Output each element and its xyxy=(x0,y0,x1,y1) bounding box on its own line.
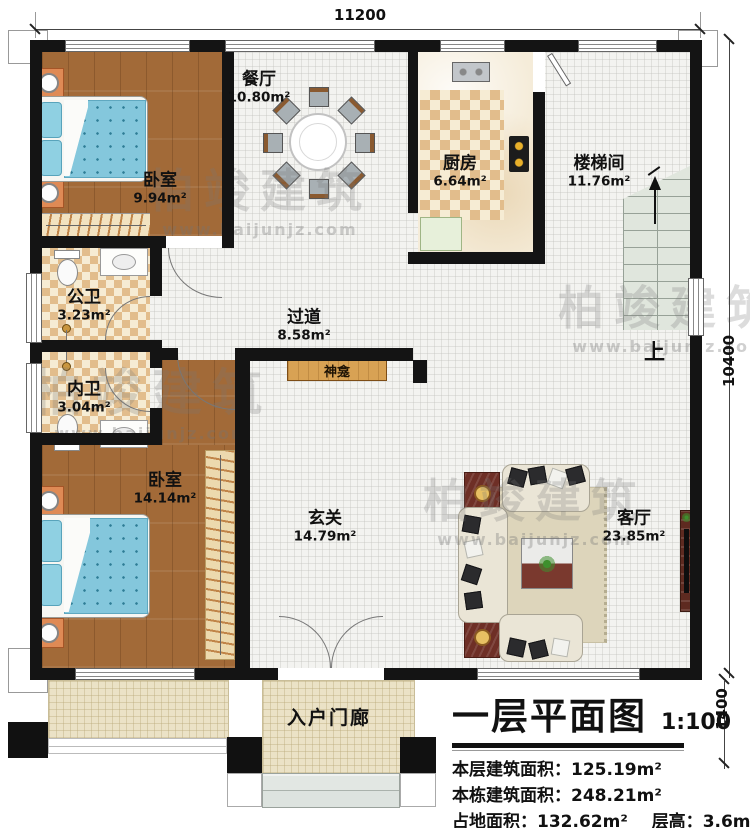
chair-icon xyxy=(355,133,375,153)
entry-steps xyxy=(262,773,400,808)
plan-scale: 1:100 xyxy=(661,710,731,735)
room-label-foyer: 玄关 14.79m² xyxy=(294,509,357,544)
extension-line xyxy=(700,12,701,38)
title-row: 一层平面图 1:100 xyxy=(452,686,748,740)
stat-row: 本层建筑面积：125.19m² xyxy=(452,757,748,783)
entrance-door-opening xyxy=(278,668,384,680)
room-label-dining: 餐厅 10.80m² xyxy=(228,70,291,105)
closet-hangers xyxy=(42,213,150,237)
column-base xyxy=(227,773,262,807)
wall xyxy=(413,360,427,383)
column xyxy=(400,737,436,773)
porch-step-edge xyxy=(48,738,227,754)
wall xyxy=(42,340,162,352)
up-arrow-icon xyxy=(649,176,661,190)
cushion xyxy=(528,639,549,660)
cushion xyxy=(463,538,483,558)
window xyxy=(225,40,375,52)
floor-plan: 神龛 卧室 9.94m² 餐厅 xyxy=(0,0,750,828)
toilet-tank xyxy=(54,250,80,259)
plan-title: 一层平面图 xyxy=(452,686,647,740)
blanket xyxy=(64,100,88,176)
window xyxy=(440,40,505,52)
wall xyxy=(690,40,702,680)
porch-floor xyxy=(48,680,229,740)
wall xyxy=(533,92,545,252)
stat-row: 占地面积：132.62m² 层高：3.6m xyxy=(452,809,748,828)
room-label-corridor: 过道 8.58m² xyxy=(277,308,330,343)
room-label-bedroom2: 卧室 14.14m² xyxy=(134,471,197,506)
dimension-line-top xyxy=(35,29,701,30)
lamp-icon xyxy=(39,183,59,203)
door-opening xyxy=(166,236,222,248)
lamp-icon xyxy=(39,623,59,643)
column-base xyxy=(400,773,436,807)
dimension-top-label: 11200 xyxy=(315,6,405,24)
column xyxy=(8,722,48,758)
chair-icon xyxy=(309,179,329,199)
pillow xyxy=(40,102,62,138)
room-label-bath-public: 公卫 3.23m² xyxy=(57,288,110,323)
wall xyxy=(408,252,545,264)
wall xyxy=(235,360,250,668)
sofa-top xyxy=(502,464,590,512)
wall xyxy=(150,408,162,445)
chair-icon xyxy=(309,87,329,107)
wall xyxy=(150,248,162,296)
window xyxy=(477,668,640,680)
wall xyxy=(42,433,150,445)
window xyxy=(688,278,704,336)
coffee-table xyxy=(521,538,573,589)
wardrobe-rod xyxy=(220,455,221,655)
cushion xyxy=(464,591,483,610)
stat-row: 本栋建筑面积：248.21m² xyxy=(452,783,748,809)
porch-label: 入户门廊 xyxy=(287,703,371,730)
title-underline xyxy=(452,743,684,748)
room-label-living: 客厅 23.85m² xyxy=(603,509,666,544)
chair-icon xyxy=(263,133,283,153)
shrine-label: 神龛 xyxy=(324,365,350,380)
window xyxy=(75,668,195,680)
wall xyxy=(408,52,418,213)
window xyxy=(65,40,190,52)
closet-rod xyxy=(46,225,146,226)
wall xyxy=(235,348,413,361)
cushion xyxy=(507,467,528,488)
sink-basin-icon xyxy=(112,254,136,270)
sofa-left xyxy=(458,507,508,623)
dimension-right-label: 10400 xyxy=(720,331,738,391)
wall xyxy=(30,40,42,680)
cushion xyxy=(528,466,548,486)
sink-counter xyxy=(100,248,148,276)
extension-line xyxy=(35,12,36,38)
kitchen-cabinet xyxy=(420,217,462,251)
dining-table-ring xyxy=(299,123,337,161)
toilet-icon xyxy=(57,259,78,286)
room-label-stairwell: 楼梯间 11.76m² xyxy=(568,154,631,189)
lamp-icon xyxy=(474,629,491,646)
lamp-icon xyxy=(474,485,491,502)
column xyxy=(227,737,262,773)
pillow xyxy=(40,140,62,176)
title-underline-thin xyxy=(452,750,684,751)
shrine-shelf: 神龛 xyxy=(287,360,387,381)
title-block: 一层平面图 1:100 本层建筑面积：125.19m² 本栋建筑面积：248.2… xyxy=(452,686,748,828)
window xyxy=(26,363,42,433)
up-arrow-line xyxy=(654,190,656,224)
door-opening xyxy=(533,52,545,92)
stairs-up-label: 上 xyxy=(644,336,665,366)
stove-icon xyxy=(509,136,529,172)
sofa-bottom xyxy=(499,614,583,662)
cushion xyxy=(461,564,482,585)
plant-icon xyxy=(537,554,557,574)
cushion xyxy=(551,638,571,658)
pillow xyxy=(40,520,62,562)
kitchen-sink-icon xyxy=(452,62,490,82)
window xyxy=(578,40,657,52)
plumbing-icon xyxy=(62,362,71,371)
cushion xyxy=(565,465,586,486)
room-label-bedroom1: 卧室 9.94m² xyxy=(133,171,186,206)
cushion xyxy=(462,515,482,535)
room-label-kitchen: 厨房 6.64m² xyxy=(433,154,486,189)
lamp-icon xyxy=(39,73,59,93)
cushion xyxy=(506,637,526,657)
wall xyxy=(157,348,178,360)
window xyxy=(26,273,42,343)
wall xyxy=(42,236,166,248)
lamp-icon xyxy=(39,491,59,511)
side-table xyxy=(464,618,500,658)
tv-icon xyxy=(684,529,689,593)
blanket xyxy=(64,518,90,612)
wardrobe-hangers xyxy=(205,450,235,660)
room-label-bath-private: 内卫 3.04m² xyxy=(57,380,110,415)
pillow xyxy=(40,564,62,606)
